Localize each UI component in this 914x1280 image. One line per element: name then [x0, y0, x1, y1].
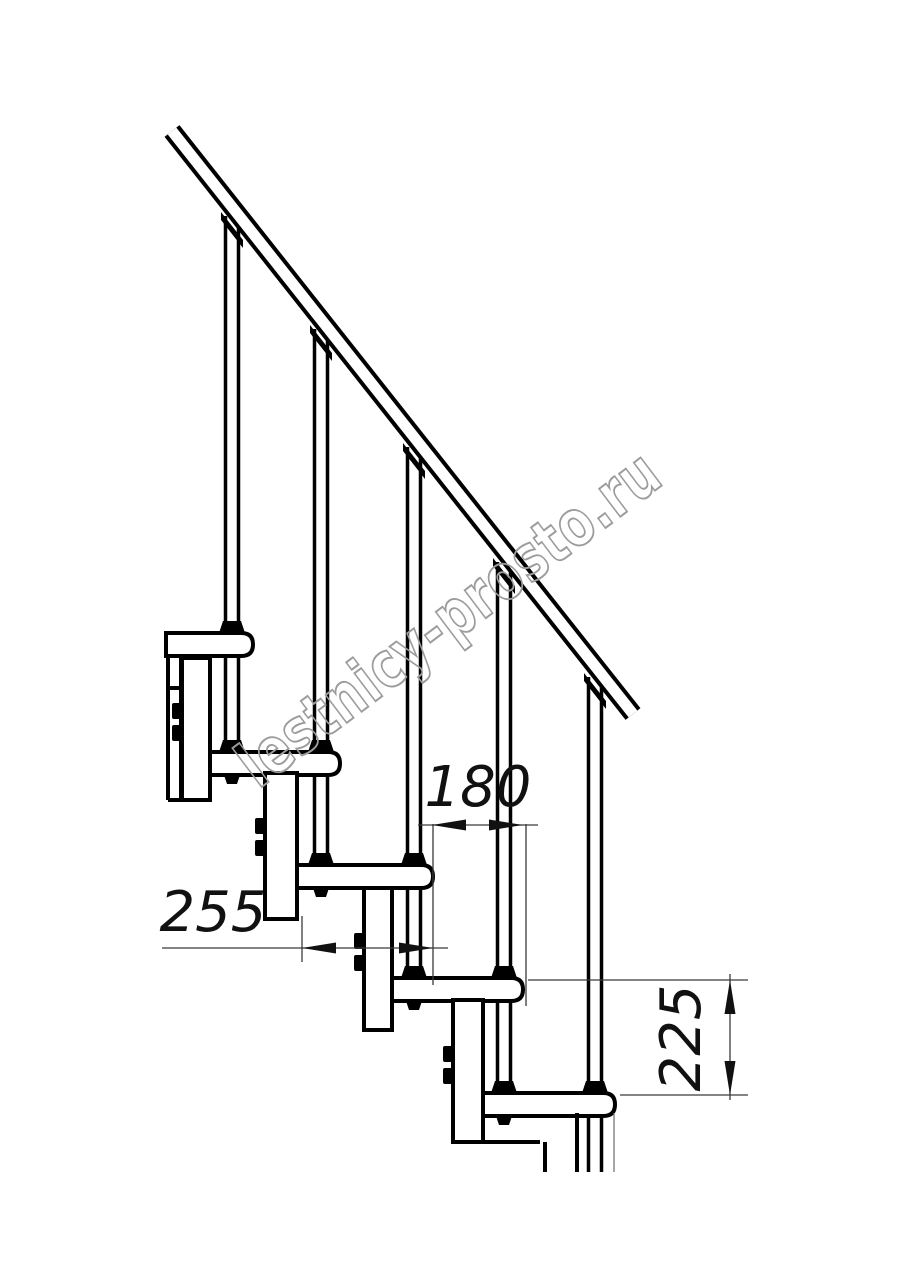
step-tread-5 — [472, 1093, 615, 1116]
dimension-step-run-label: 180 — [425, 755, 532, 820]
clip — [443, 1068, 453, 1084]
bolt-nub — [406, 1001, 422, 1010]
bolt-nub — [496, 1116, 512, 1125]
bolt-nub — [224, 775, 240, 784]
foot-collar — [308, 853, 334, 865]
collar — [401, 853, 427, 865]
step-tread-3 — [288, 865, 433, 888]
clip — [172, 703, 182, 719]
baluster-3 — [408, 447, 421, 974]
dimension-step-run: 180 — [418, 755, 538, 1006]
collar — [582, 1081, 608, 1093]
collar — [219, 621, 245, 633]
support-column-5 — [483, 1113, 577, 1172]
step-tread-1 — [166, 633, 253, 656]
clip — [443, 1046, 453, 1062]
support-column-4 — [453, 1000, 483, 1142]
clip — [255, 840, 265, 856]
foot-collar — [491, 1081, 517, 1093]
dimension-step-length-label: 255 — [160, 880, 267, 945]
support-column-3 — [364, 888, 392, 1030]
dimension-step-rise-label: 225 — [649, 985, 714, 1092]
dimension-step-length: 255 — [160, 824, 448, 985]
clip — [354, 933, 364, 949]
balusters — [226, 216, 602, 1172]
baluster-1 — [226, 216, 239, 748]
clip — [354, 955, 364, 971]
bolt-nub — [313, 888, 329, 897]
step-tread-4 — [380, 978, 523, 1001]
collar — [491, 966, 517, 978]
dimension-step-rise: 225 — [528, 974, 748, 1100]
foot-collar — [401, 966, 427, 978]
baluster-2 — [315, 329, 328, 861]
clip — [172, 725, 182, 741]
staircase-technical-drawing: 255 180 225 lestnicy-prosto.ru — [0, 0, 914, 1280]
staircase-drawing-page: 255 180 225 lestnicy-prosto.ru — [0, 0, 914, 1280]
support-column-1 — [182, 658, 210, 800]
clip — [255, 818, 265, 834]
